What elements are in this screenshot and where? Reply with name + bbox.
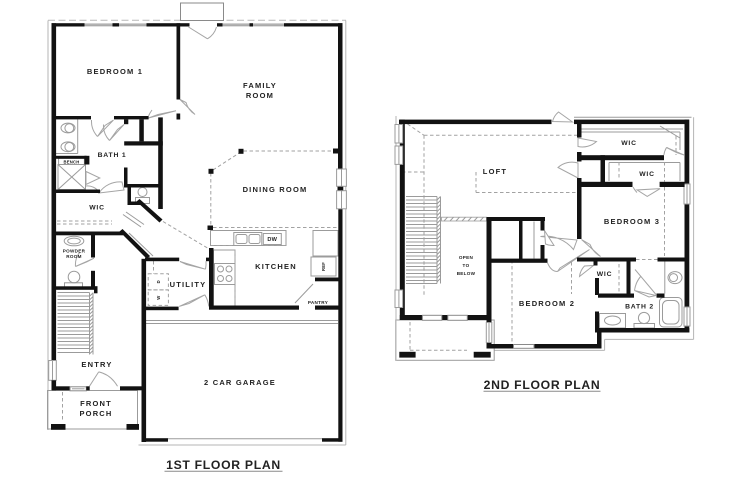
svg-text:BATH 2: BATH 2 (625, 304, 654, 311)
svg-text:UTILITY: UTILITY (170, 280, 207, 289)
svg-text:DINING ROOM: DINING ROOM (243, 185, 308, 194)
svg-text:WIC: WIC (597, 271, 613, 278)
svg-text:ENTRY: ENTRY (81, 360, 112, 369)
svg-text:OPEN: OPEN (459, 255, 474, 260)
svg-text:2ND FLOOR PLAN: 2ND FLOOR PLAN (484, 378, 601, 392)
svg-text:KITCHEN: KITCHEN (255, 262, 297, 271)
svg-text:WIC: WIC (621, 140, 637, 147)
svg-text:BELOW: BELOW (457, 271, 476, 276)
svg-text:BEDROOM 3: BEDROOM 3 (604, 217, 660, 226)
svg-text:DW: DW (267, 237, 277, 243)
svg-text:REF: REF (321, 262, 326, 271)
svg-text:BEDROOM 1: BEDROOM 1 (87, 67, 143, 76)
svg-text:BENCH: BENCH (64, 159, 80, 164)
svg-text:FAMILY: FAMILY (243, 81, 277, 90)
svg-text:ROOM: ROOM (246, 91, 274, 100)
svg-text:1ST FLOOR PLAN: 1ST FLOOR PLAN (166, 458, 281, 472)
svg-text:LOFT: LOFT (483, 167, 507, 176)
svg-text:WIC: WIC (89, 205, 105, 212)
svg-text:FRONT: FRONT (80, 399, 112, 408)
svg-text:2 CAR GARAGE: 2 CAR GARAGE (204, 378, 276, 387)
svg-text:BEDROOM 2: BEDROOM 2 (519, 299, 575, 308)
svg-text:BATH 1: BATH 1 (98, 152, 127, 159)
svg-text:W: W (156, 296, 161, 300)
svg-text:WIC: WIC (639, 171, 655, 178)
svg-text:TO: TO (463, 263, 470, 268)
svg-text:PANTRY: PANTRY (308, 300, 328, 305)
svg-text:POWDER: POWDER (63, 249, 86, 254)
svg-text:D: D (156, 280, 161, 283)
svg-text:ROOM: ROOM (66, 254, 82, 259)
svg-text:PORCH: PORCH (79, 409, 112, 418)
